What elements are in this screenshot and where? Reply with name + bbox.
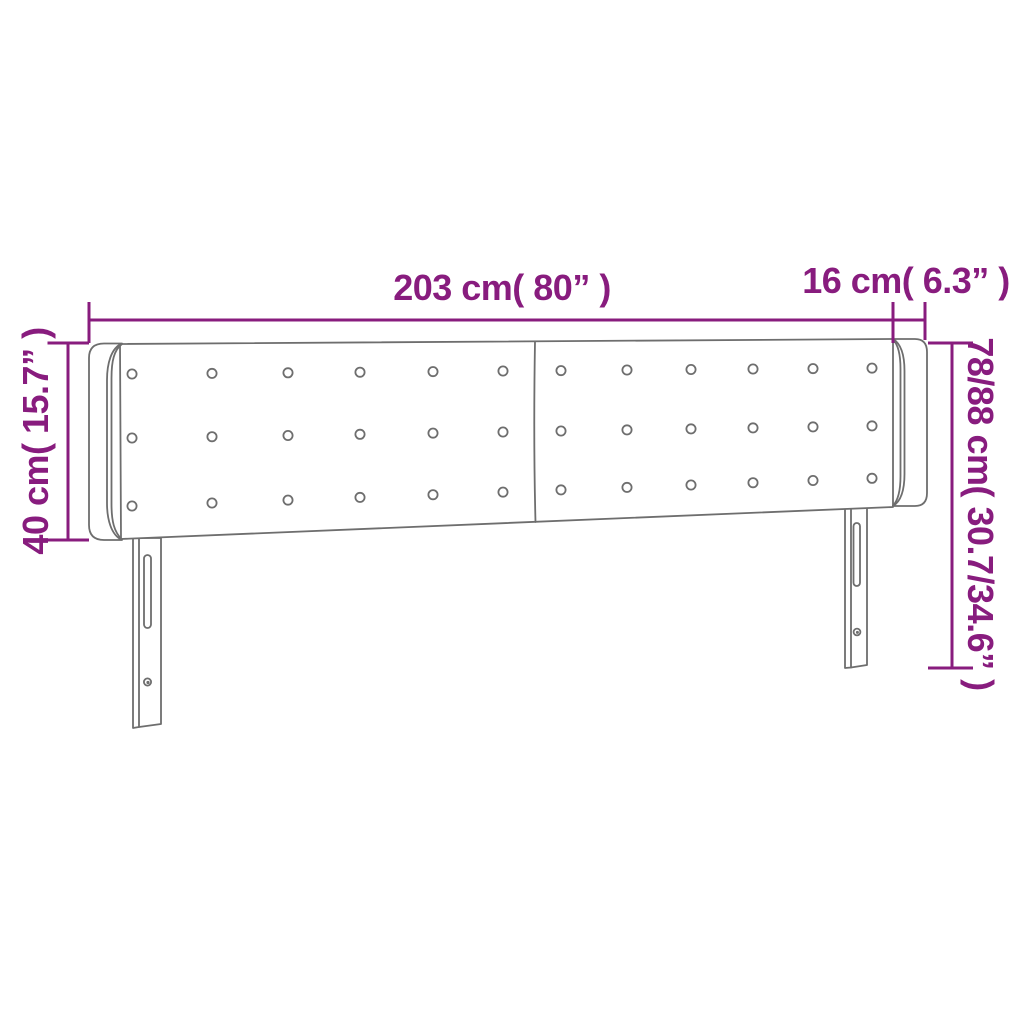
left-wing-body xyxy=(89,344,122,541)
diagram-canvas: 203 cm( 80” ) 16 cm( 6.3” ) 40 cm( 15.7”… xyxy=(0,0,1024,1024)
left-leg-body xyxy=(133,538,161,728)
label-total-width: 203 cm( 80” ) xyxy=(393,267,611,308)
left-leg-hole-center xyxy=(146,681,149,684)
label-wing-depth: 16 cm( 6.3” ) xyxy=(802,260,1010,301)
right-leg-body xyxy=(845,507,867,668)
right-wing-body xyxy=(893,339,927,506)
width-dimension xyxy=(89,302,925,343)
label-total-height: 78/88 cm( 30.7/34.6” ) xyxy=(960,337,1001,690)
left-wing xyxy=(89,344,122,541)
left-leg xyxy=(133,538,161,728)
dimension-diagram: 203 cm( 80” ) 16 cm( 6.3” ) 40 cm( 15.7”… xyxy=(0,0,1024,1024)
right-leg-hole-center xyxy=(856,631,859,634)
right-wing xyxy=(893,339,927,506)
label-headboard-height: 40 cm( 15.7” ) xyxy=(15,327,56,554)
right-wing-roll-line xyxy=(893,340,901,506)
headboard-drawing xyxy=(89,339,927,728)
right-leg xyxy=(845,507,867,668)
